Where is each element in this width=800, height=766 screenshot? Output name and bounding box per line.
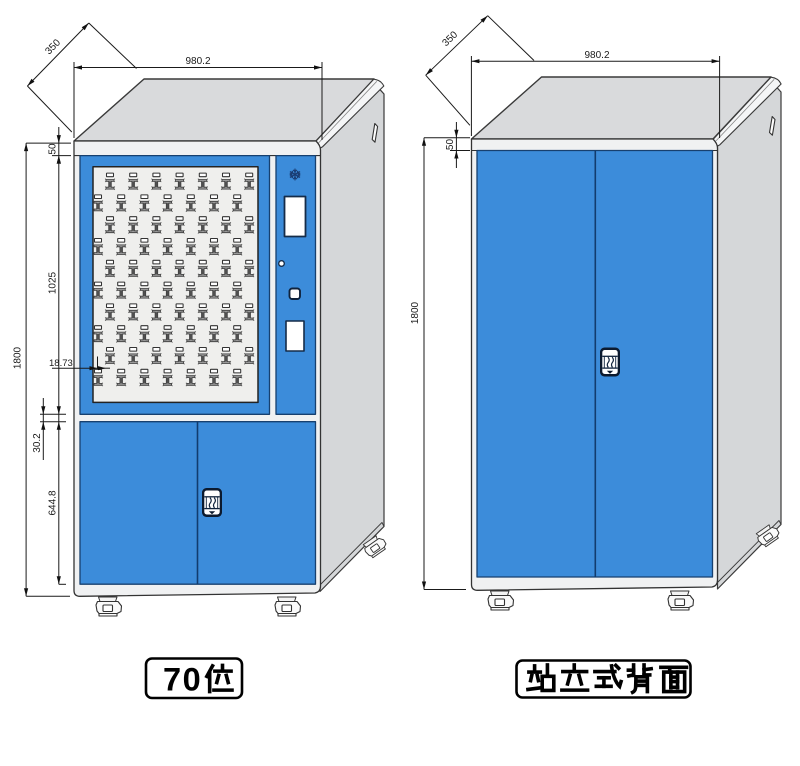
svg-text:70: 70: [163, 662, 202, 698]
svg-text:644.8: 644.8: [48, 490, 59, 515]
svg-text:1800: 1800: [410, 301, 421, 324]
svg-text:50: 50: [48, 143, 59, 155]
svg-text:30.2: 30.2: [32, 433, 43, 453]
svg-text:50: 50: [445, 139, 456, 151]
svg-text:1025: 1025: [48, 271, 59, 294]
svg-text:18.73: 18.73: [49, 358, 73, 369]
svg-text:980.2: 980.2: [185, 56, 210, 67]
svg-text:1800: 1800: [13, 346, 24, 369]
svg-text:980.2: 980.2: [584, 50, 609, 61]
